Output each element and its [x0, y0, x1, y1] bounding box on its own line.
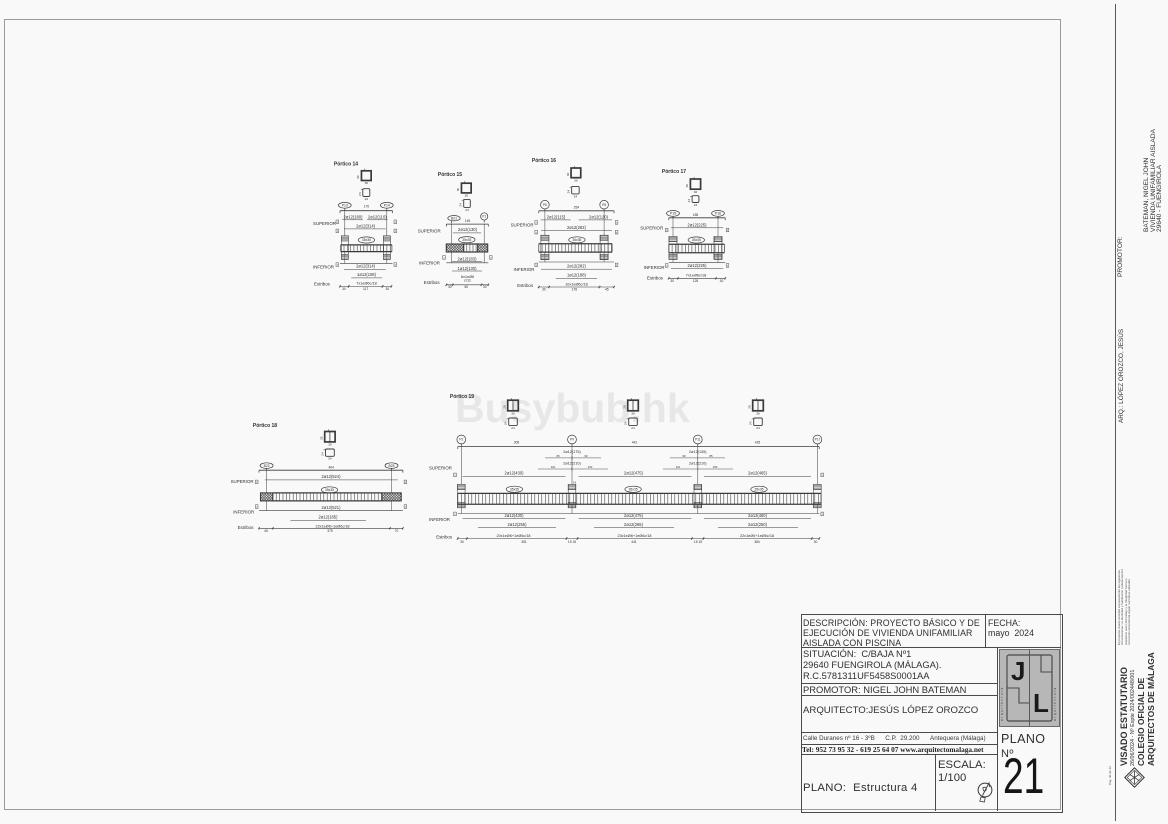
svg-text:2ø12(524): 2ø12(524)	[322, 474, 342, 479]
svg-text:7x1eØ6c/18: 7x1eØ6c/18	[686, 273, 706, 277]
svg-text:2ø12(183): 2ø12(183)	[458, 256, 478, 261]
svg-text:Pórtico 15: Pórtico 15	[438, 172, 462, 178]
svg-text:24: 24	[624, 421, 628, 425]
svg-text:Estribos: Estribos	[314, 281, 331, 286]
svg-text:30: 30	[456, 188, 460, 192]
svg-text:10x1eØ6c/18: 10x1eØ6c/18	[565, 283, 588, 287]
svg-text:Estribos: Estribos	[436, 535, 453, 540]
svg-text:441: 441	[632, 440, 638, 444]
svg-text:25: 25	[748, 405, 752, 409]
svg-text:B22: B22	[264, 464, 270, 468]
svg-text:INFERIOR: INFERIOR	[644, 265, 665, 270]
svg-text:425: 425	[755, 440, 761, 444]
svg-text:P6: P6	[543, 203, 547, 207]
svg-text:384: 384	[754, 540, 760, 544]
svg-text:35x35: 35x35	[629, 488, 638, 492]
svg-text:Pórtico 19: Pórtico 19	[450, 394, 474, 400]
svg-text:INFERIOR: INFERIOR	[429, 517, 450, 522]
svg-text:2ø12(265): 2ø12(265)	[624, 522, 644, 527]
svg-text:2ø12(110): 2ø12(110)	[368, 214, 387, 219]
svg-text:23x1eØ6+1eØ6c/18: 23x1eØ6+1eØ6c/18	[617, 534, 651, 538]
svg-text:2ø12(314): 2ø12(314)	[356, 223, 376, 228]
svg-text:22x1eØ6+1eØ6c/18: 22x1eØ6+1eØ6c/18	[315, 524, 349, 528]
svg-text:35x35: 35x35	[462, 238, 471, 242]
svg-text:2ø12(250): 2ø12(250)	[748, 522, 768, 527]
svg-text:2ø12(130): 2ø12(130)	[458, 227, 478, 232]
svg-text:P16: P16	[715, 212, 721, 216]
svg-text:INFERIOR: INFERIOR	[313, 265, 334, 270]
svg-text:85: 85	[709, 454, 713, 458]
svg-text:35x35: 35x35	[692, 238, 701, 242]
svg-text:178: 178	[572, 288, 578, 292]
svg-text:Estribos: Estribos	[517, 283, 534, 288]
svg-text:30: 30	[511, 411, 515, 415]
svg-text:SUPERIOR: SUPERIOR	[640, 226, 663, 231]
svg-text:24: 24	[749, 421, 753, 425]
svg-text:P17: P17	[815, 438, 821, 442]
svg-text:14: 14	[573, 480, 577, 484]
svg-text:35x35: 35x35	[755, 488, 764, 492]
svg-text:SUPERIOR: SUPERIOR	[418, 229, 441, 234]
svg-text:30: 30	[566, 172, 570, 176]
svg-text:254: 254	[574, 205, 580, 209]
svg-text:Pórtico 17: Pórtico 17	[662, 169, 686, 175]
svg-text:SUPERIOR: SUPERIOR	[429, 465, 452, 470]
svg-text:Estribos: Estribos	[238, 525, 255, 530]
svg-text:404: 404	[328, 466, 334, 470]
svg-text:J: J	[1011, 656, 1025, 686]
svg-text:24: 24	[687, 199, 691, 203]
svg-text:1ø12(108): 1ø12(108)	[357, 272, 377, 277]
svg-text:2ø12(185): 2ø12(185)	[319, 515, 339, 520]
svg-text:351: 351	[521, 540, 527, 544]
svg-text:Pórtico 18: Pórtico 18	[253, 423, 277, 429]
svg-text:24: 24	[459, 203, 463, 207]
svg-text:45: 45	[264, 529, 268, 533]
svg-text:2ø12(210): 2ø12(210)	[689, 461, 707, 465]
svg-text:30: 30	[542, 288, 546, 292]
svg-text:7x1eØ6c/18: 7x1eØ6c/18	[356, 281, 376, 285]
svg-text:P1: P1	[482, 215, 486, 219]
svg-text:2ø12(314): 2ø12(314)	[356, 263, 376, 268]
svg-text:25: 25	[623, 405, 627, 409]
svg-text:SUPERIOR: SUPERIOR	[313, 221, 336, 226]
svg-text:35x35: 35x35	[510, 488, 519, 492]
svg-text:24: 24	[358, 192, 362, 196]
svg-text:30: 30	[720, 279, 724, 283]
svg-text:2ø12(475): 2ø12(475)	[624, 513, 644, 518]
svg-text:L: L	[1033, 688, 1049, 718]
svg-text:SUPERIOR: SUPERIOR	[511, 222, 534, 227]
svg-text:30: 30	[756, 411, 760, 415]
svg-text:24: 24	[365, 197, 369, 201]
svg-text:SUPERIOR: SUPERIOR	[231, 479, 254, 484]
svg-text:P14: P14	[384, 204, 390, 208]
svg-text:30: 30	[356, 175, 360, 179]
svg-text:441: 441	[631, 540, 637, 544]
svg-text:P15: P15	[670, 212, 676, 216]
svg-text:B21: B21	[451, 216, 457, 220]
svg-text:2ø12(225): 2ø12(225)	[688, 222, 708, 227]
svg-text:24: 24	[321, 452, 325, 456]
svg-text:185: 185	[693, 213, 699, 217]
svg-text:2ø12(460): 2ø12(460)	[748, 513, 768, 518]
svg-text:2ø12(430): 2ø12(430)	[505, 513, 525, 518]
svg-text:30: 30	[385, 287, 389, 291]
svg-text:2ø12(521): 2ø12(521)	[322, 505, 342, 510]
svg-text:45: 45	[605, 288, 609, 292]
svg-text:35x35: 35x35	[572, 238, 581, 242]
svg-text:Estribos: Estribos	[647, 275, 664, 280]
svg-text:35x35: 35x35	[325, 488, 334, 492]
svg-text:379: 379	[327, 529, 333, 533]
svg-text:24: 24	[511, 426, 515, 430]
svg-text:2ø12(282): 2ø12(282)	[567, 263, 587, 268]
svg-text:110: 110	[676, 465, 681, 469]
svg-text:150: 150	[713, 465, 718, 469]
svg-text:30: 30	[448, 285, 452, 289]
svg-text:70: 70	[395, 529, 399, 533]
svg-text:2ø12(120): 2ø12(120)	[589, 215, 609, 220]
svg-text:1ø12(188): 1ø12(188)	[567, 272, 587, 277]
svg-text:60: 60	[464, 285, 468, 289]
svg-text:30: 30	[685, 184, 689, 188]
svg-text:100: 100	[588, 465, 593, 469]
svg-text:INFERIOR: INFERIOR	[514, 267, 535, 272]
svg-text:2ø12(210): 2ø12(210)	[563, 461, 581, 465]
svg-text:15 15: 15 15	[568, 540, 576, 544]
svg-text:2ø12(115): 2ø12(115)	[547, 215, 566, 220]
svg-text:P13: P13	[342, 204, 348, 208]
svg-text:30: 30	[694, 190, 698, 194]
svg-text:P2: P2	[459, 438, 463, 442]
svg-text:B25: B25	[388, 464, 394, 468]
svg-text:90: 90	[584, 454, 588, 458]
svg-text:2ø12(282): 2ø12(282)	[567, 225, 587, 230]
svg-text:24: 24	[328, 457, 332, 461]
svg-text:20x1eØ6+1eØ6c/18: 20x1eØ6+1eØ6c/18	[496, 534, 530, 538]
svg-text:24: 24	[504, 421, 508, 425]
svg-text:145: 145	[465, 219, 471, 223]
svg-text:INFERIOR: INFERIOR	[419, 260, 440, 265]
svg-text:30: 30	[814, 540, 818, 544]
svg-text:90: 90	[682, 454, 686, 458]
svg-text:P8: P8	[602, 203, 606, 207]
svg-text:35x35: 35x35	[362, 238, 371, 242]
svg-text:2ø12(430): 2ø12(430)	[505, 470, 525, 475]
svg-text:Pórtico 16: Pórtico 16	[532, 158, 556, 164]
svg-text:65: 65	[556, 454, 560, 458]
svg-text:30: 30	[365, 181, 369, 185]
svg-text:1ø12(130): 1ø12(130)	[458, 266, 478, 271]
svg-text:25: 25	[320, 436, 324, 440]
svg-text:30: 30	[670, 279, 674, 283]
svg-text:25: 25	[503, 405, 507, 409]
svg-text:24: 24	[567, 190, 571, 194]
svg-text:15 15: 15 15	[694, 540, 702, 544]
svg-text:30: 30	[631, 411, 635, 415]
svg-text:arquitectura: arquitectura	[1053, 686, 1057, 721]
svg-text:INFERIOR: INFERIOR	[233, 510, 254, 515]
svg-text:30: 30	[483, 285, 487, 289]
svg-text:110: 110	[551, 465, 556, 469]
svg-text:2ø12(135): 2ø12(135)	[689, 450, 707, 454]
svg-text:24: 24	[694, 203, 698, 207]
svg-text:2ø12(180): 2ø12(180)	[344, 214, 364, 219]
svg-text:2ø12(175): 2ø12(175)	[563, 450, 581, 454]
svg-text:c/11: c/11	[464, 279, 471, 283]
svg-text:125: 125	[693, 279, 699, 283]
svg-text:2ø12(225): 2ø12(225)	[688, 263, 708, 268]
svg-text:2ø12(465): 2ø12(465)	[748, 470, 768, 475]
svg-text:30: 30	[342, 287, 346, 291]
svg-text:24: 24	[756, 426, 760, 430]
svg-text:2ø12(255): 2ø12(255)	[508, 522, 528, 527]
svg-text:24: 24	[465, 208, 469, 212]
svg-text:305: 305	[514, 440, 520, 444]
svg-text:22x1eØ6+1eØ6c/18: 22x1eØ6+1eØ6c/18	[740, 534, 774, 538]
svg-text:P9: P9	[570, 438, 574, 442]
svg-text:P11: P11	[695, 438, 701, 442]
svg-text:117: 117	[363, 287, 368, 291]
svg-text:170: 170	[364, 205, 370, 209]
svg-text:2ø12(475): 2ø12(475)	[624, 470, 644, 475]
svg-text:arquitectura: arquitectura	[1000, 686, 1004, 721]
svg-text:Estribos: Estribos	[424, 280, 441, 285]
svg-text:Pórtico 14: Pórtico 14	[334, 161, 358, 167]
svg-text:30: 30	[328, 443, 332, 447]
svg-text:30: 30	[460, 540, 464, 544]
svg-text:24: 24	[631, 426, 635, 430]
svg-text:30: 30	[574, 178, 578, 182]
svg-text:24: 24	[574, 194, 578, 198]
svg-text:30: 30	[465, 194, 469, 198]
